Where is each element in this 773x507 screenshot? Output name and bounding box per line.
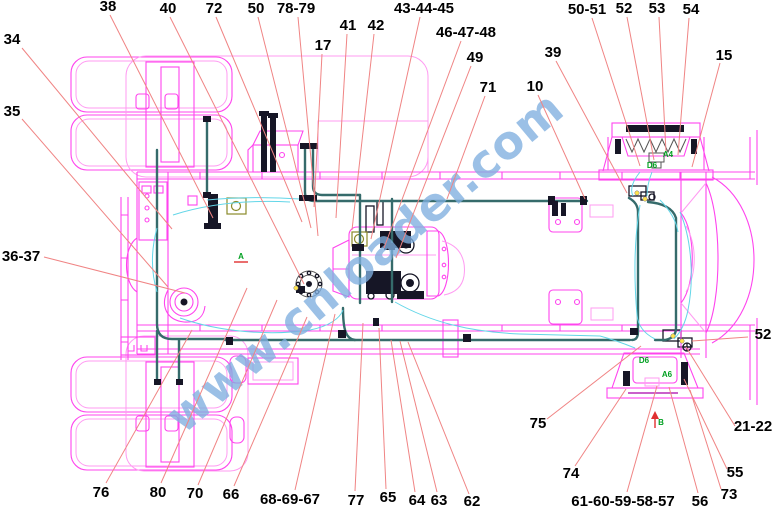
part-label-80: 80: [150, 484, 167, 501]
part-label-54: 54: [683, 1, 700, 18]
part-label-70: 70: [187, 485, 204, 502]
part-label-38: 38: [100, 0, 117, 15]
rear-counterweight-curves: [681, 172, 754, 358]
part-label-63: 63: [431, 492, 448, 507]
section-marker-D6: D6: [639, 356, 650, 365]
part-label-65: 65: [380, 489, 397, 506]
leader-line-77: [355, 323, 363, 491]
leader-line-62: [408, 342, 469, 494]
part-label-52: 52: [616, 0, 633, 17]
leader-line-64: [391, 340, 415, 492]
leader-line-74: [575, 389, 626, 466]
leader-line-54: [678, 18, 689, 155]
chassis-diagram-svg: www.cnloader.com 3840725078-7917414243-4…: [0, 0, 773, 507]
part-label-50: 50: [248, 0, 265, 17]
part-label-74: 74: [563, 465, 580, 482]
part-label-40: 40: [160, 0, 177, 17]
part-label-71: 71: [480, 79, 497, 96]
section-marker-A4: A4: [663, 150, 674, 159]
leader-line-72: [216, 17, 302, 222]
leader-line-40: [170, 17, 304, 284]
part-label-42: 42: [368, 17, 385, 34]
leader-line-21-22: [686, 347, 735, 426]
leader-line-65: [379, 328, 386, 489]
part-label-77: 77: [348, 492, 365, 507]
part-label-72: 72: [206, 0, 223, 17]
leader-line-61-60-59-58-57: [627, 386, 657, 492]
part-label-56: 56: [692, 493, 709, 507]
leader-line-38: [110, 15, 213, 218]
part-label-50-51: 50-51: [568, 1, 606, 18]
leader-line-41: [336, 34, 347, 218]
valve-top-right: [629, 186, 655, 200]
part-label-39: 39: [545, 44, 562, 61]
part-label-17: 17: [315, 37, 332, 54]
leader-line-36-37: [44, 257, 185, 293]
part-label-75: 75: [530, 415, 547, 432]
part-label-46-47-48: 46-47-48: [436, 24, 496, 41]
part-label-52: 52: [755, 326, 772, 343]
leader-line-73: [690, 390, 721, 489]
section-arrow-head: [651, 411, 659, 419]
leader-line-63: [400, 341, 437, 492]
section-marker-A6: A6: [662, 370, 673, 379]
part-label-34: 34: [4, 31, 21, 48]
part-label-15: 15: [716, 47, 733, 64]
part-label-68-69-67: 68-69-67: [260, 491, 320, 507]
part-label-53: 53: [649, 0, 666, 17]
diagram-canvas: www.cnloader.com 3840725078-7917414243-4…: [0, 0, 773, 507]
leader-line-17: [314, 54, 322, 207]
part-label-43-44-45: 43-44-45: [394, 0, 454, 17]
part-label-49: 49: [467, 49, 484, 66]
part-label-35: 35: [4, 103, 21, 120]
part-label-10: 10: [527, 78, 544, 95]
section-marker-B: B: [658, 418, 664, 427]
part-label-36-37: 36-37: [2, 248, 40, 265]
part-label-21-22: 21-22: [734, 418, 772, 435]
part-label-41: 41: [340, 17, 357, 34]
part-label-55: 55: [727, 464, 744, 481]
leader-line-34: [22, 48, 172, 229]
part-label-76: 76: [93, 484, 110, 501]
part-label-61-60-59-58-57: 61-60-59-58-57: [571, 493, 674, 507]
part-label-66: 66: [223, 486, 240, 503]
part-label-78-79: 78-79: [277, 0, 315, 17]
part-label-64: 64: [409, 492, 426, 507]
part-label-73: 73: [721, 486, 738, 503]
section-marker-A: A: [238, 252, 244, 261]
section-marker-D6: D6: [647, 161, 658, 170]
watermark-text: www.cnloader.com: [155, 80, 573, 443]
part-label-62: 62: [464, 493, 481, 507]
leader-line-15: [692, 63, 720, 167]
